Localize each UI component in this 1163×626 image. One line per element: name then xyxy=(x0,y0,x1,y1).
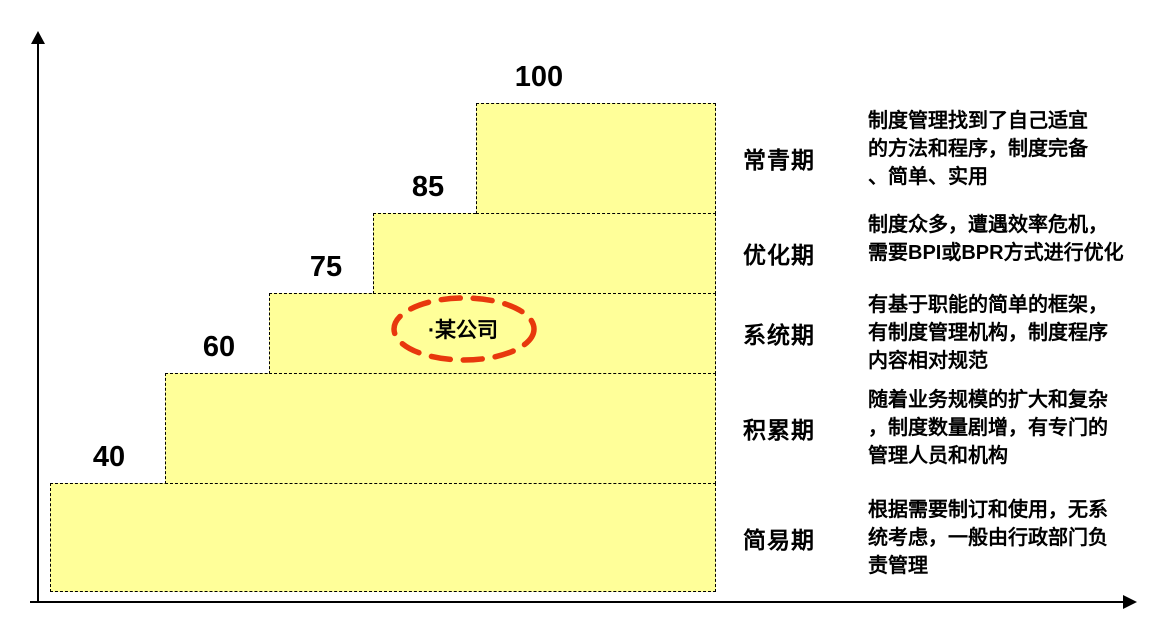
score-label-level-1: 40 xyxy=(59,440,159,474)
stage-description: 有基于职能的简单的框架， 有制度管理机构，制度程序 内容相对规范 xyxy=(868,291,1156,375)
stage-description: 根据需要制订和使用，无系 统考虑，一般由行政部门负 责管理 xyxy=(868,496,1156,580)
stage-name-label: 简易期 xyxy=(743,521,819,555)
stage-name-label: 系统期 xyxy=(743,316,819,350)
stage-row-level-2: 积累期 随着业务规模的扩大和复杂 ，制度数量剧增，有专门的 管理人员和机构 xyxy=(743,373,1163,483)
stage-description: 制度管理找到了自己适宜 的方法和程序，制度完备 、简单、实用 xyxy=(868,107,1156,191)
maturity-staircase-diagram: 40 60 75 85 100 简易期 根据需要制订和使用，无系 统考虑，一般由… xyxy=(0,0,1163,626)
score-label-level-3: 75 xyxy=(276,250,376,284)
stage-description: 随着业务规模的扩大和复杂 ，制度数量剧增，有专门的 管理人员和机构 xyxy=(868,386,1156,470)
stage-name-label: 积累期 xyxy=(743,411,819,445)
x-axis-arrowhead-icon xyxy=(1123,595,1137,609)
stage-row-level-4: 优化期 制度众多，遭遇效率危机， 需要BPI或BPR方式进行优化 xyxy=(743,213,1163,293)
step-bar-level-1 xyxy=(50,483,716,592)
company-annotation-label: ·某公司 xyxy=(398,317,528,344)
x-axis xyxy=(30,601,1124,603)
step-bar-level-4 xyxy=(373,213,716,294)
stage-row-level-1: 简易期 根据需要制订和使用，无系 统考虑，一般由行政部门负 责管理 xyxy=(743,483,1163,592)
stage-row-level-5: 常青期 制度管理找到了自己适宜 的方法和程序，制度完备 、简单、实用 xyxy=(743,103,1163,213)
stage-name-label: 优化期 xyxy=(743,236,819,270)
score-label-level-4: 85 xyxy=(378,170,478,204)
score-label-level-5: 100 xyxy=(489,60,589,94)
score-label-level-2: 60 xyxy=(169,330,269,364)
stage-row-level-3: 系统期 有基于职能的简单的框架， 有制度管理机构，制度程序 内容相对规范 xyxy=(743,293,1163,373)
step-bar-level-5 xyxy=(476,103,716,214)
stage-description: 制度众多，遭遇效率危机， 需要BPI或BPR方式进行优化 xyxy=(868,211,1156,267)
y-axis xyxy=(37,42,39,603)
stage-name-label: 常青期 xyxy=(743,141,819,175)
step-bar-level-2 xyxy=(165,373,716,484)
